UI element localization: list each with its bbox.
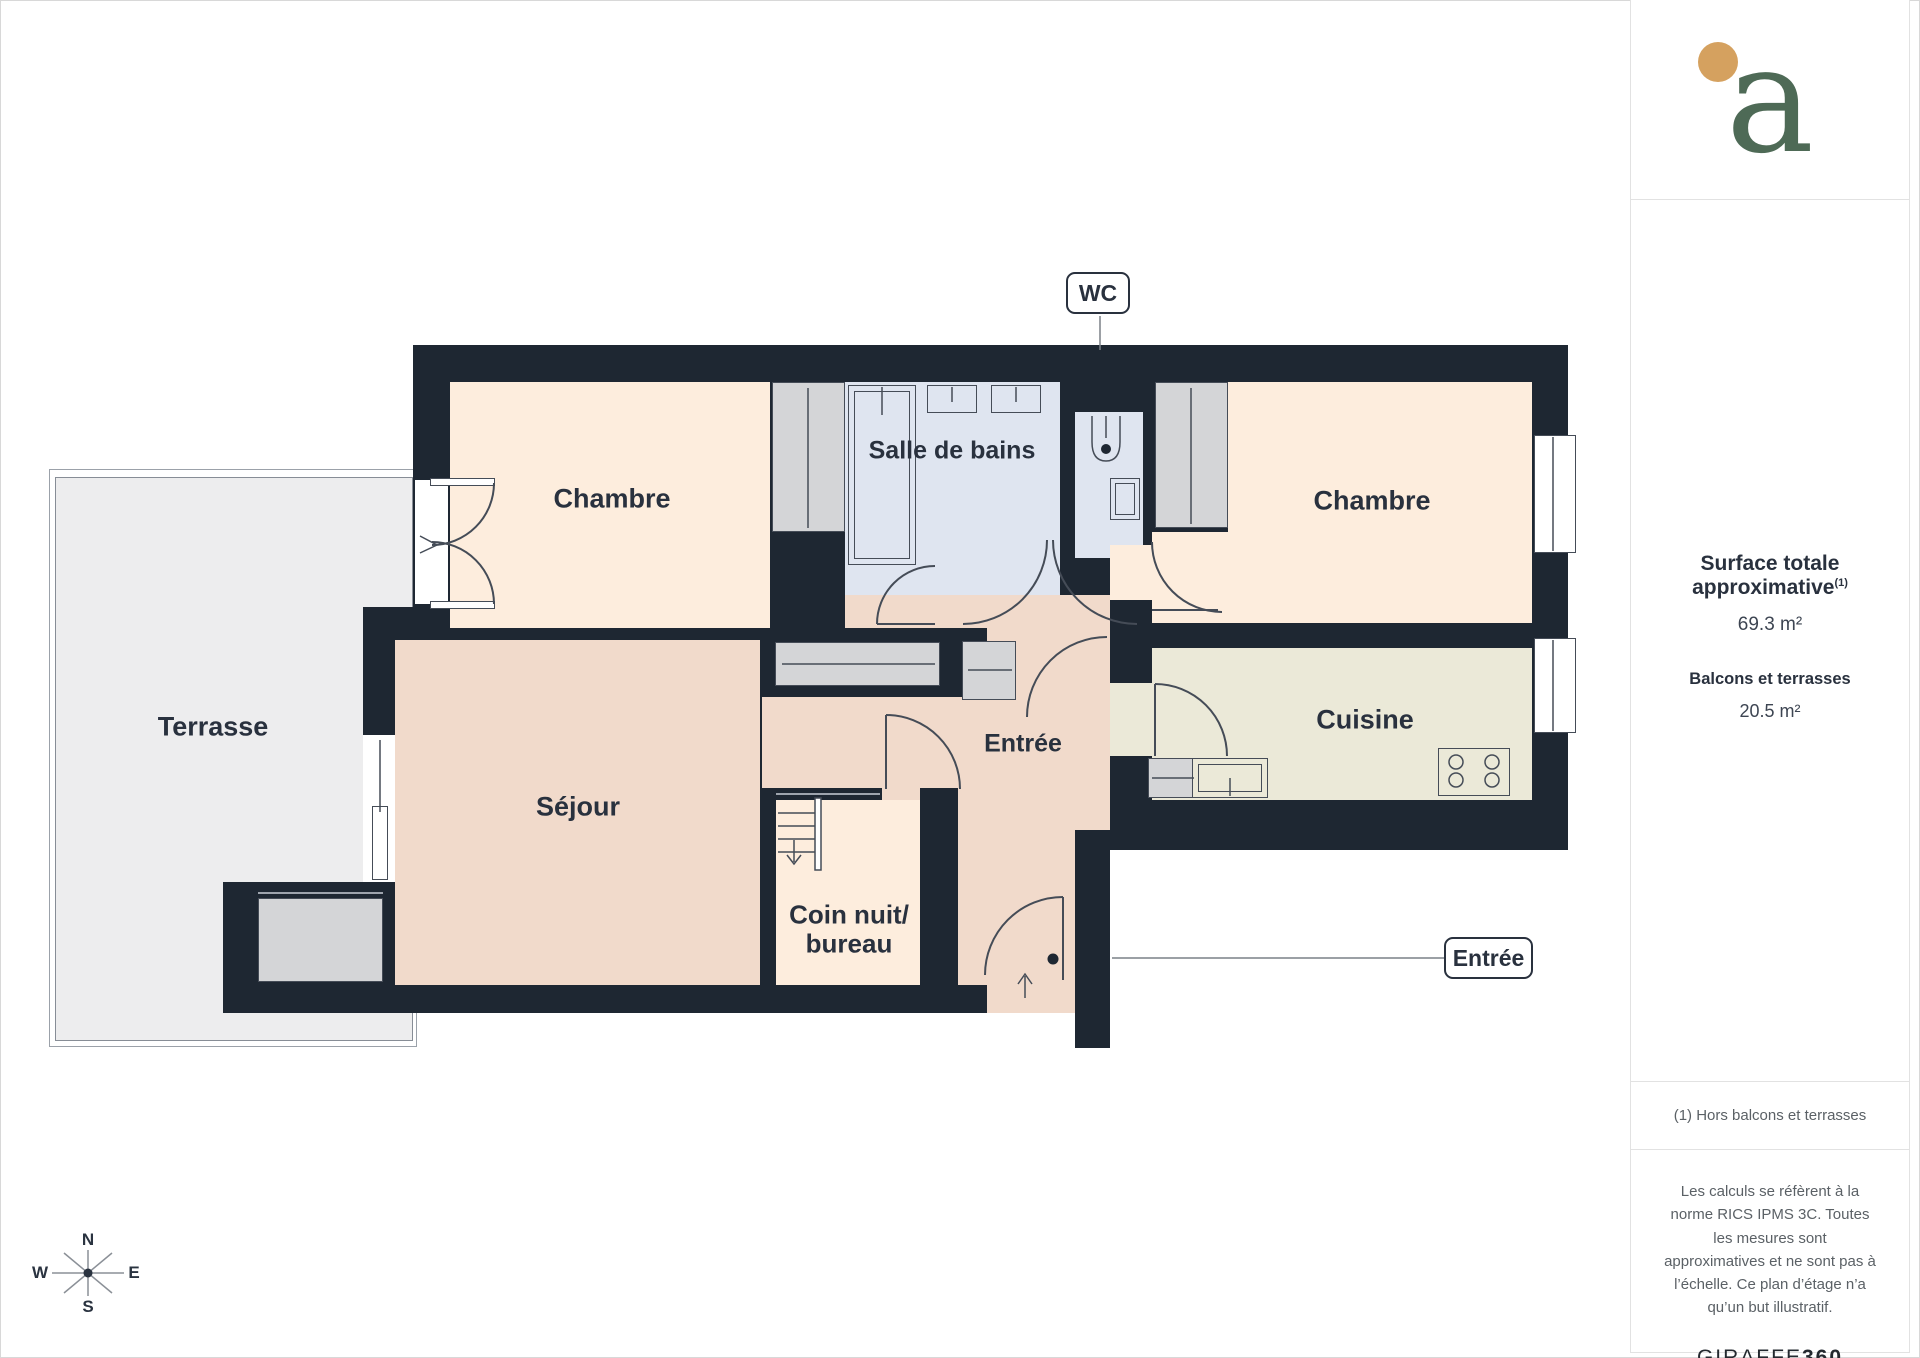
info-sidebar: a Surface totale approximative(1) 69.3 m…	[1630, 0, 1910, 1353]
french-door-panel-bottom	[430, 601, 495, 609]
agency-logo: a	[1631, 0, 1909, 200]
surface-title-text: Surface totale approximative	[1692, 552, 1839, 599]
hall-mid	[762, 697, 958, 788]
alcove-storage	[258, 898, 383, 982]
room-entree-lower	[958, 830, 1075, 985]
surface-title: Surface totale approximative(1)	[1631, 552, 1909, 600]
window-cuisine	[1534, 638, 1576, 733]
footnote: (1) Hors balcons et terrasses	[1631, 1082, 1909, 1150]
label-entree-room: Entrée	[984, 730, 1062, 759]
callout-entree: Entrée	[1444, 937, 1533, 979]
coin-nuit-opening	[882, 788, 920, 800]
label-terrasse: Terrasse	[158, 712, 269, 743]
label-sejour: Séjour	[536, 792, 620, 823]
closet-entree	[962, 641, 1016, 700]
entry-door-gap	[987, 985, 1075, 1013]
closet-chambre-left	[772, 382, 845, 532]
floorplan-page: Terrasse Chambre Salle de bains Chambre …	[0, 0, 1920, 1358]
label-coin-nuit: Coin nuit/ bureau	[789, 900, 909, 957]
logo-letter: a	[1726, 14, 1814, 186]
wc-sink-basin	[1115, 483, 1135, 515]
compass-s: S	[82, 1297, 93, 1317]
surface-info-section: Surface totale approximative(1) 69.3 m² …	[1631, 200, 1909, 1082]
compass-n: N	[82, 1230, 94, 1250]
brand-suffix: 360	[1802, 1346, 1843, 1358]
callout-wc: WC	[1066, 272, 1130, 314]
legal-section: Les calculs se réfèrent à la norme RICS …	[1631, 1150, 1909, 1358]
brand-logo: GIRAFFE360	[1663, 1346, 1877, 1358]
label-chambre-left: Chambre	[553, 484, 670, 515]
french-door-gap	[415, 480, 448, 604]
nook-connector	[1110, 545, 1155, 600]
label-chambre-right: Chambre	[1313, 486, 1430, 517]
closet-cuisine	[1148, 758, 1198, 798]
french-door-panel-top	[430, 478, 495, 486]
compass-rose-icon	[52, 1250, 124, 1296]
stove	[1438, 748, 1510, 796]
surface-value: 69.3 m²	[1631, 614, 1909, 636]
compass-e: E	[128, 1263, 139, 1283]
chambre-right-entry-nook	[1152, 532, 1228, 623]
closet-sejour	[775, 642, 940, 686]
shower-tray	[854, 391, 910, 559]
wall-thin-closets	[760, 628, 950, 642]
bath-sink-2	[991, 385, 1041, 413]
logo-dot-icon	[1698, 42, 1738, 82]
label-cuisine: Cuisine	[1316, 705, 1414, 736]
window-chambre-right	[1534, 435, 1576, 553]
label-coin-nuit-line1: Coin nuit/	[789, 900, 909, 929]
logo-mark: a	[1726, 26, 1814, 174]
legal-text: Les calculs se réfèrent à la norme RICS …	[1663, 1180, 1877, 1320]
balcony-title: Balcons et terrasses	[1631, 670, 1909, 689]
kitchen-sink-basin	[1198, 764, 1262, 792]
sliding-door-panel	[372, 806, 388, 880]
label-salle-de-bains: Salle de bains	[869, 437, 1036, 466]
compass-w: W	[32, 1263, 48, 1283]
balcony-value: 20.5 m²	[1631, 701, 1909, 722]
label-coin-nuit-line2: bureau	[789, 929, 909, 958]
surface-title-sup: (1)	[1834, 577, 1847, 589]
bath-sink-1	[927, 385, 977, 413]
wall-sliver	[762, 637, 775, 697]
cuisine-door-gap	[1110, 683, 1152, 756]
hall-upper	[845, 595, 1110, 628]
closet-hall	[1155, 382, 1228, 528]
brand-name: GIRAFFE	[1697, 1346, 1802, 1358]
wall-entry-step	[1075, 985, 1110, 1048]
